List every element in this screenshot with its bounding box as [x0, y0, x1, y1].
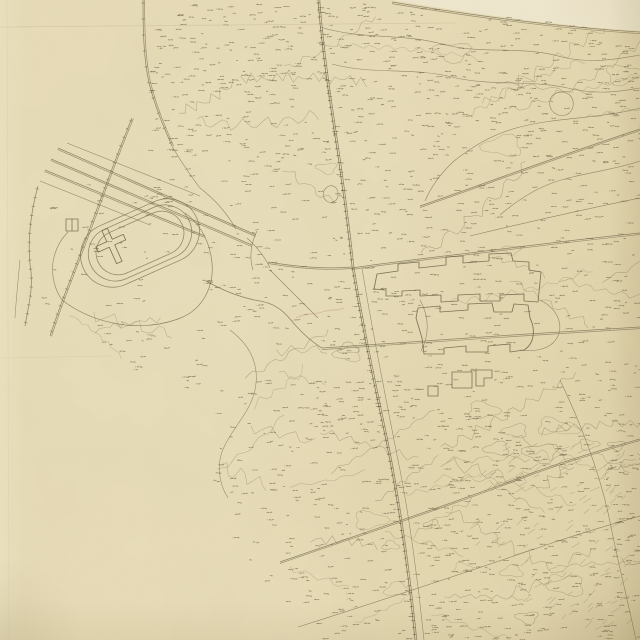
scan-grain — [0, 0, 640, 640]
scanned-survey-map — [0, 0, 640, 640]
map-drawing — [0, 0, 640, 640]
